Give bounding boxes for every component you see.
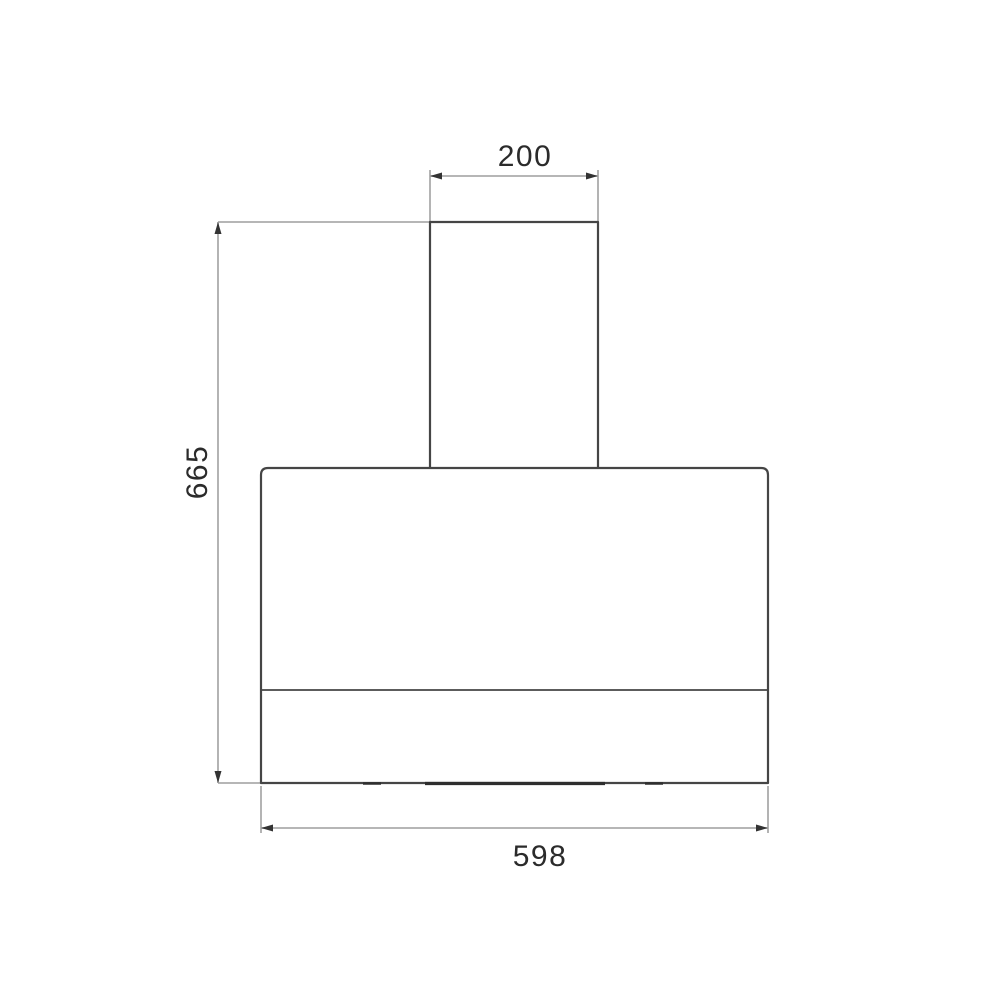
dimension-lines-group <box>218 170 768 833</box>
arrowhead-200-right <box>586 173 598 180</box>
arrowhead-598-right <box>756 825 768 832</box>
diagram-canvas: 200 665 598 <box>0 0 1000 1000</box>
arrowhead-665-top <box>215 222 222 234</box>
hood-outline-group <box>261 222 768 783</box>
arrowhead-598-left <box>261 825 273 832</box>
dimension-label-body-width: 598 <box>513 840 568 873</box>
dimension-label-overall-height: 665 <box>181 445 214 500</box>
arrowheads-group <box>215 173 769 832</box>
dimension-label-chimney-width: 200 <box>498 140 553 173</box>
arrowhead-200-left <box>430 173 442 180</box>
chimney-duct-outline <box>430 222 598 468</box>
arrowhead-665-bottom <box>215 771 222 783</box>
cooker-hood-dimension-drawing: 200 665 598 <box>0 0 1000 1000</box>
hood-body-outline <box>261 468 768 783</box>
